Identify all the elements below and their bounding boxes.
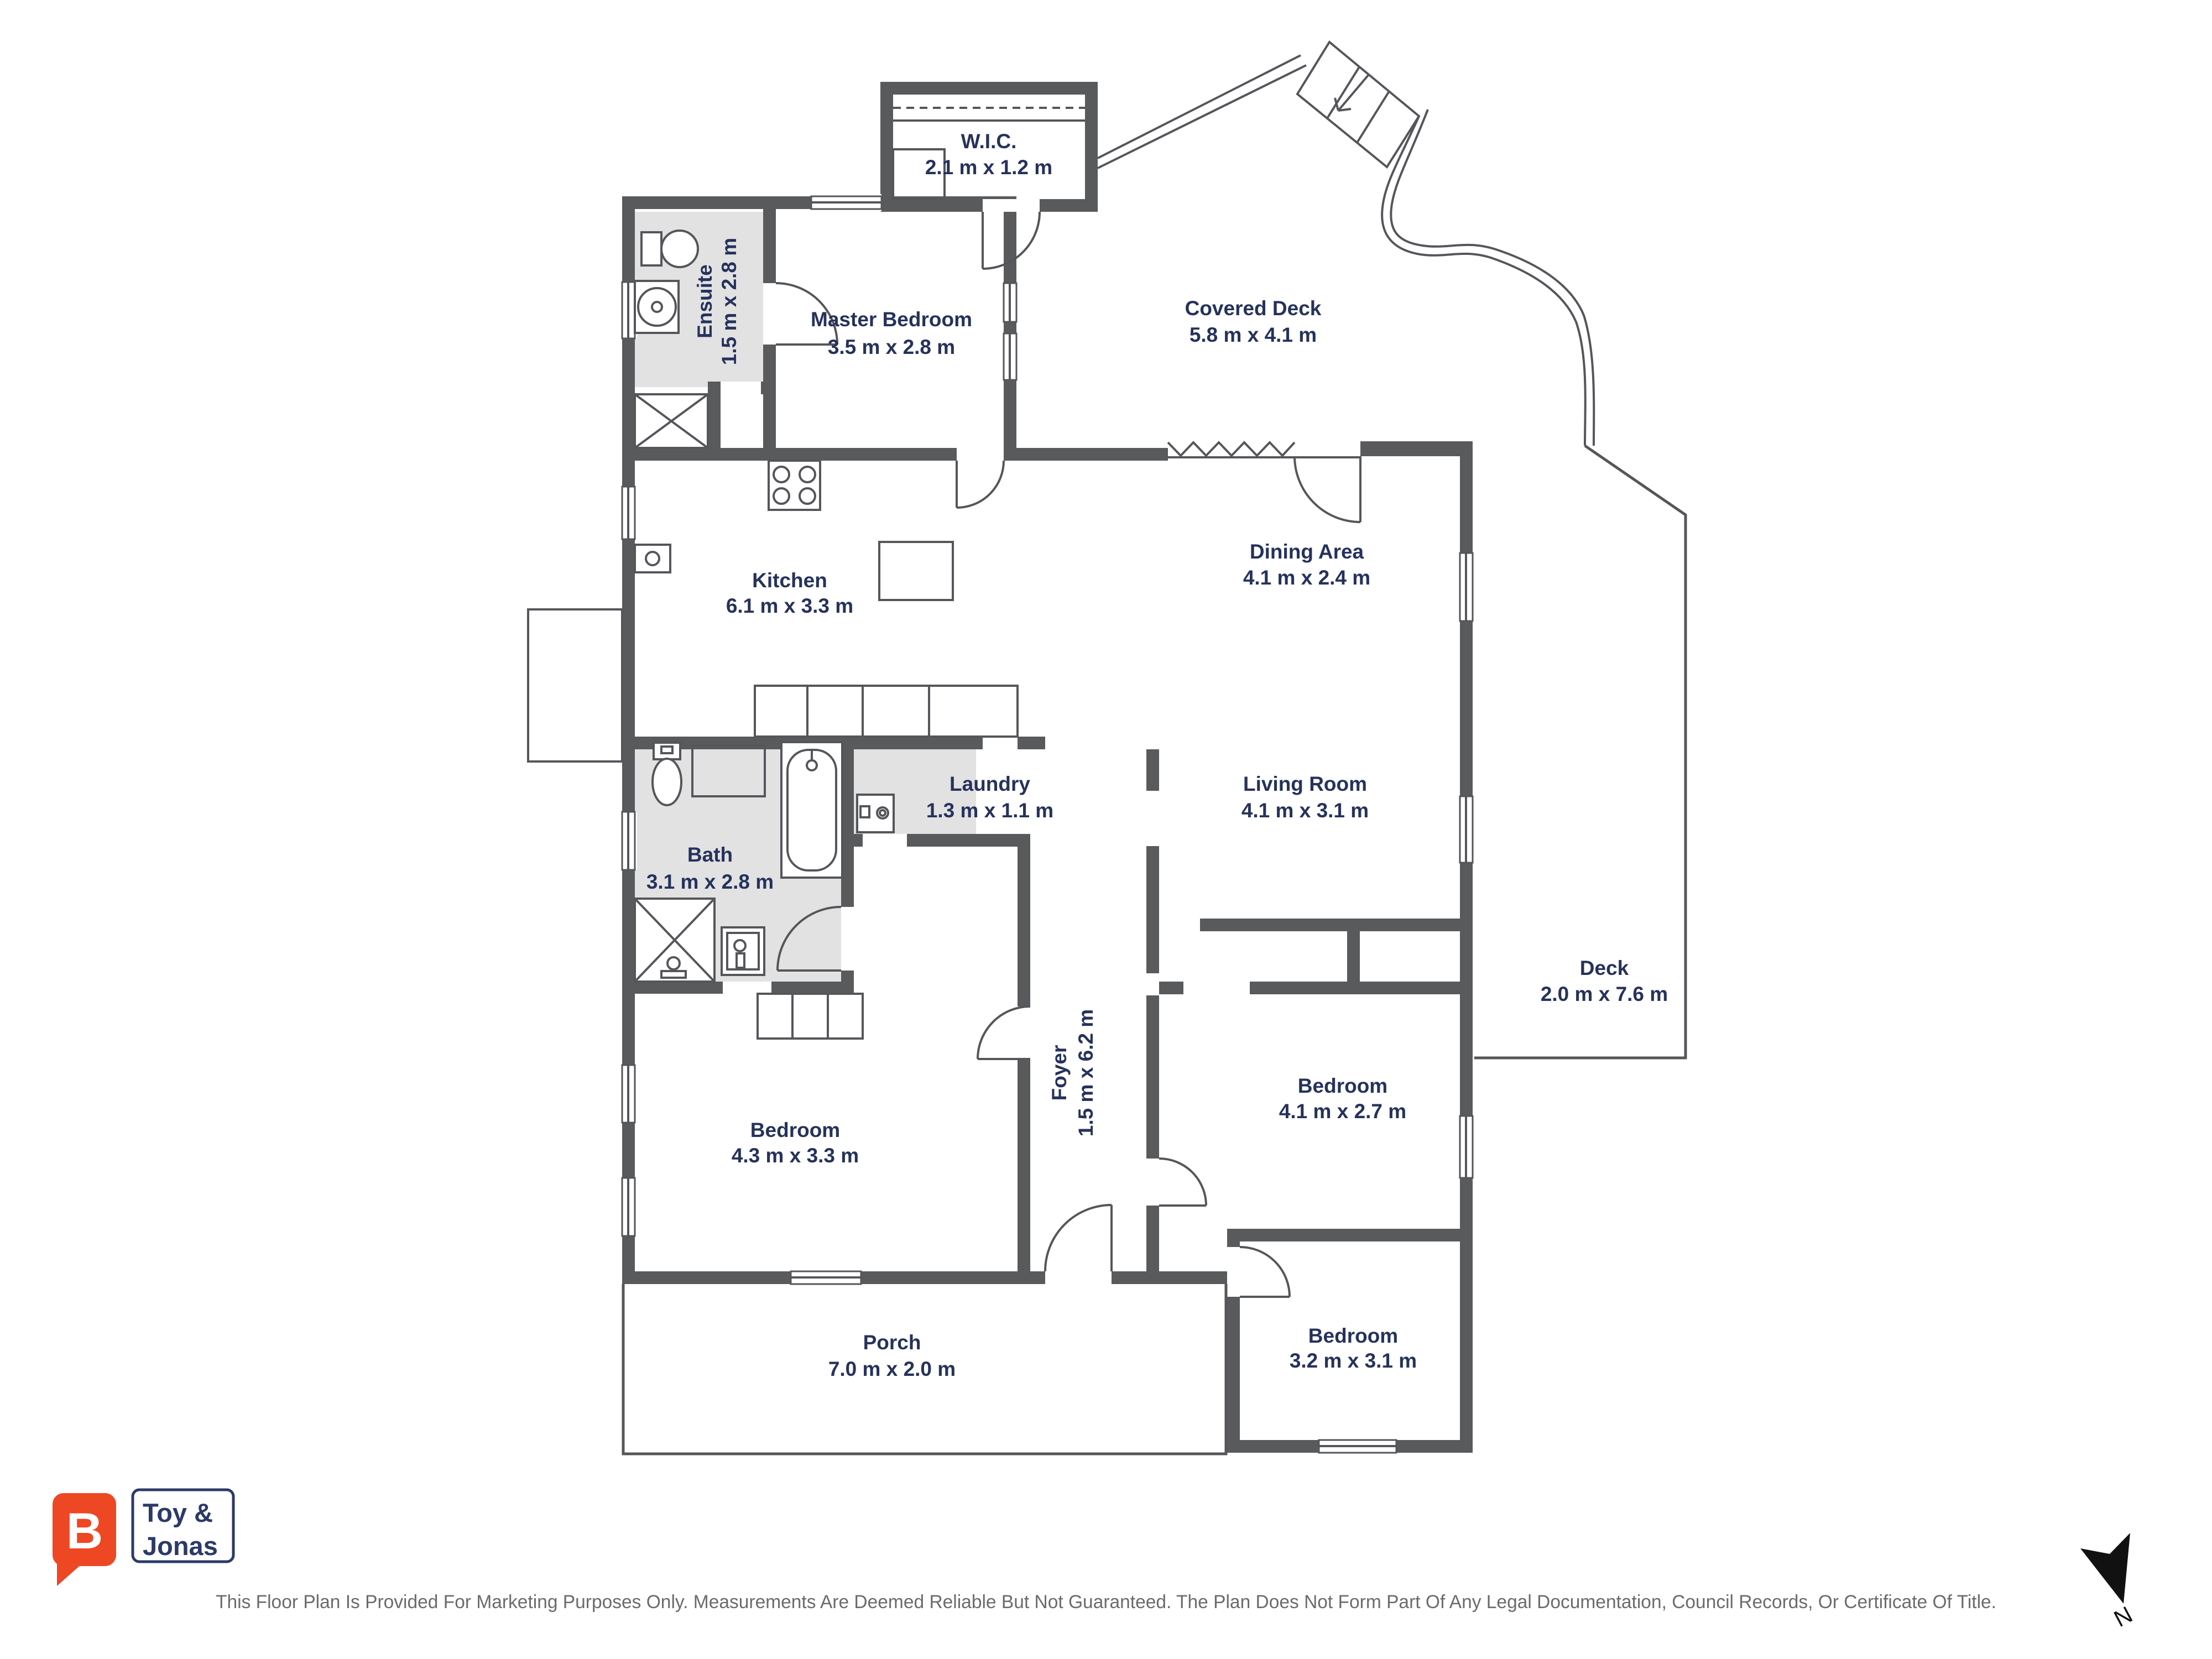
door-icon	[957, 461, 1004, 508]
room-dims-ensuite: 1.5 m x 2.8 m	[718, 238, 740, 365]
window-icon	[1458, 553, 1475, 621]
north-arrow-icon	[2080, 1533, 2130, 1604]
room-label-deck: Deck	[1580, 957, 1629, 979]
plan-line	[1240, 1247, 1290, 1297]
plan-line	[1297, 42, 1419, 167]
wardrobe-icon	[758, 994, 863, 1039]
wall-segment	[983, 199, 1040, 212]
window-icon	[620, 487, 637, 539]
wall-segment	[1360, 441, 1473, 456]
wall-segment	[758, 994, 863, 1039]
fireplace-outline	[528, 609, 622, 761]
north-label: N	[2110, 1601, 2137, 1632]
wall-segment	[755, 686, 1018, 737]
deck-rail-curve	[1382, 116, 1585, 446]
floor-plan-canvas: W.I.C. 2.1 m x 1.2 m Master Bedroom 3.5 …	[0, 0, 2212, 1659]
bathtub-icon	[781, 742, 842, 878]
plan-line	[957, 461, 1004, 508]
logo-line2: Jonas	[143, 1531, 218, 1561]
wall-segment	[1018, 1006, 1030, 1059]
room-label-kitchen: Kitchen	[752, 569, 827, 592]
room-dims-dining-area: 4.1 m x 2.4 m	[1243, 566, 1370, 589]
wall-segment	[1004, 196, 1016, 461]
logo-line1: Toy &	[143, 1498, 213, 1527]
wall-segment	[1347, 931, 1360, 982]
wall-segment	[641, 232, 661, 265]
room-label-dining-area: Dining Area	[1250, 540, 1364, 563]
door-icon	[1159, 1159, 1206, 1206]
kitchen-counter	[755, 686, 1018, 737]
wall-segment	[983, 737, 1018, 749]
wall-segment	[1085, 82, 1098, 212]
room-label-master-bedroom: Master Bedroom	[811, 308, 972, 331]
wall-segment	[880, 82, 893, 212]
window-icon	[1319, 1438, 1396, 1455]
room-label-living-room: Living Room	[1243, 773, 1367, 795]
open-boundary-zigzag	[1168, 442, 1360, 457]
window-icon	[620, 1178, 637, 1236]
room-label-ensuite: Ensuite	[693, 264, 716, 338]
room-label-porch: Porch	[863, 1331, 921, 1354]
wall-segment	[1146, 791, 1159, 846]
wall-segment	[1159, 919, 1473, 931]
wall-segment	[708, 382, 721, 448]
room-label-bath: Bath	[687, 843, 733, 866]
window-icon	[1001, 283, 1019, 322]
wall-segment	[1227, 1247, 1240, 1297]
room-label-bedroom-east: Bedroom	[1298, 1074, 1387, 1097]
plan-line	[1159, 1159, 1206, 1206]
room-dims-bedroom-south: 3.2 m x 3.1 m	[1290, 1349, 1417, 1372]
wall-segment	[1045, 1271, 1112, 1284]
fixture-shape	[653, 759, 681, 805]
window-icon	[1458, 796, 1475, 863]
fixture-shape	[661, 231, 698, 267]
room-label-bedroom-west: Bedroom	[750, 1119, 840, 1141]
room-dims-kitchen: 6.1 m x 3.3 m	[726, 594, 853, 617]
window-icon	[620, 1065, 637, 1123]
window-icon	[1001, 333, 1019, 380]
sink-icon	[635, 281, 679, 333]
room-dims-deck: 2.0 m x 7.6 m	[1541, 983, 1668, 1005]
window-icon	[811, 194, 881, 211]
wall-segment	[654, 743, 680, 759]
wall-segment	[1183, 982, 1250, 994]
wall-segment	[622, 448, 1168, 461]
wall-segment	[1146, 1159, 1159, 1206]
room-dims-porch: 7.0 m x 2.0 m	[828, 1358, 956, 1380]
window-icon	[791, 1269, 861, 1286]
room-dims-master-bedroom: 3.5 m x 2.8 m	[828, 336, 955, 358]
deck-rail-curve	[1391, 109, 1594, 446]
door-icon	[1295, 456, 1360, 522]
wall-segment	[723, 982, 771, 994]
deck-rail	[1098, 55, 1301, 158]
wall-segment	[781, 742, 842, 878]
disclaimer-text: This Floor Plan Is Provided For Marketin…	[216, 1592, 1996, 1613]
room-dims-living-room: 4.1 m x 3.1 m	[1241, 799, 1369, 822]
room-dims-foyer: 1.5 m x 6.2 m	[1074, 1009, 1097, 1136]
wall-segment	[863, 834, 907, 847]
washer-icon	[857, 795, 894, 832]
shower-icon	[635, 394, 708, 448]
logo-initial: B	[66, 1503, 103, 1559]
plan-line	[1045, 1205, 1112, 1271]
kitchen-sink-icon	[635, 545, 670, 572]
room-label-covered-deck: Covered Deck	[1185, 297, 1322, 320]
room-dims-bedroom-east: 4.1 m x 2.7 m	[1279, 1100, 1406, 1123]
stove-icon	[769, 461, 820, 510]
room-dims-bedroom-west: 4.3 m x 3.3 m	[732, 1144, 859, 1167]
brand-logo: B Toy & Jonas	[53, 1490, 233, 1586]
deck-rail	[1098, 65, 1306, 168]
wall-segment	[1159, 919, 1200, 931]
shower-icon	[635, 899, 714, 982]
room-dims-bath: 3.1 m x 2.8 m	[646, 870, 774, 893]
wall-segment	[635, 545, 670, 572]
sink-icon	[722, 927, 764, 975]
toilet-icon	[641, 231, 698, 267]
wall-segment	[880, 82, 1098, 95]
door-icon	[1045, 1205, 1112, 1271]
wall-segment	[1018, 847, 1030, 1284]
room-dims-covered-deck: 5.8 m x 4.1 m	[1190, 324, 1317, 346]
wall-segment	[1146, 973, 1159, 995]
wall-segment	[763, 283, 776, 345]
wall-segment	[622, 1271, 1240, 1284]
wall-segment	[841, 907, 854, 971]
room-label-foyer: Foyer	[1048, 1045, 1071, 1101]
wall-segment	[957, 448, 1004, 461]
stairs-icon	[1297, 42, 1419, 167]
plan-line	[1295, 456, 1360, 522]
north-compass: N	[2080, 1533, 2137, 1632]
room-dims-laundry: 1.3 m x 1.1 m	[926, 799, 1053, 822]
plan-line	[1168, 442, 1295, 456]
room-dims-wic: 2.1 m x 1.2 m	[925, 156, 1052, 179]
toilet-icon	[653, 743, 681, 805]
room-label-bedroom-south: Bedroom	[1308, 1324, 1398, 1347]
wall-segment	[721, 382, 761, 394]
wall-segment	[1227, 1229, 1473, 1241]
room-label-wic: W.I.C.	[961, 130, 1017, 153]
door-icon	[1240, 1247, 1290, 1297]
window-icon	[620, 812, 637, 870]
room-label-laundry: Laundry	[950, 773, 1030, 795]
kitchen-island	[879, 542, 953, 600]
window-icon	[1458, 1116, 1475, 1178]
